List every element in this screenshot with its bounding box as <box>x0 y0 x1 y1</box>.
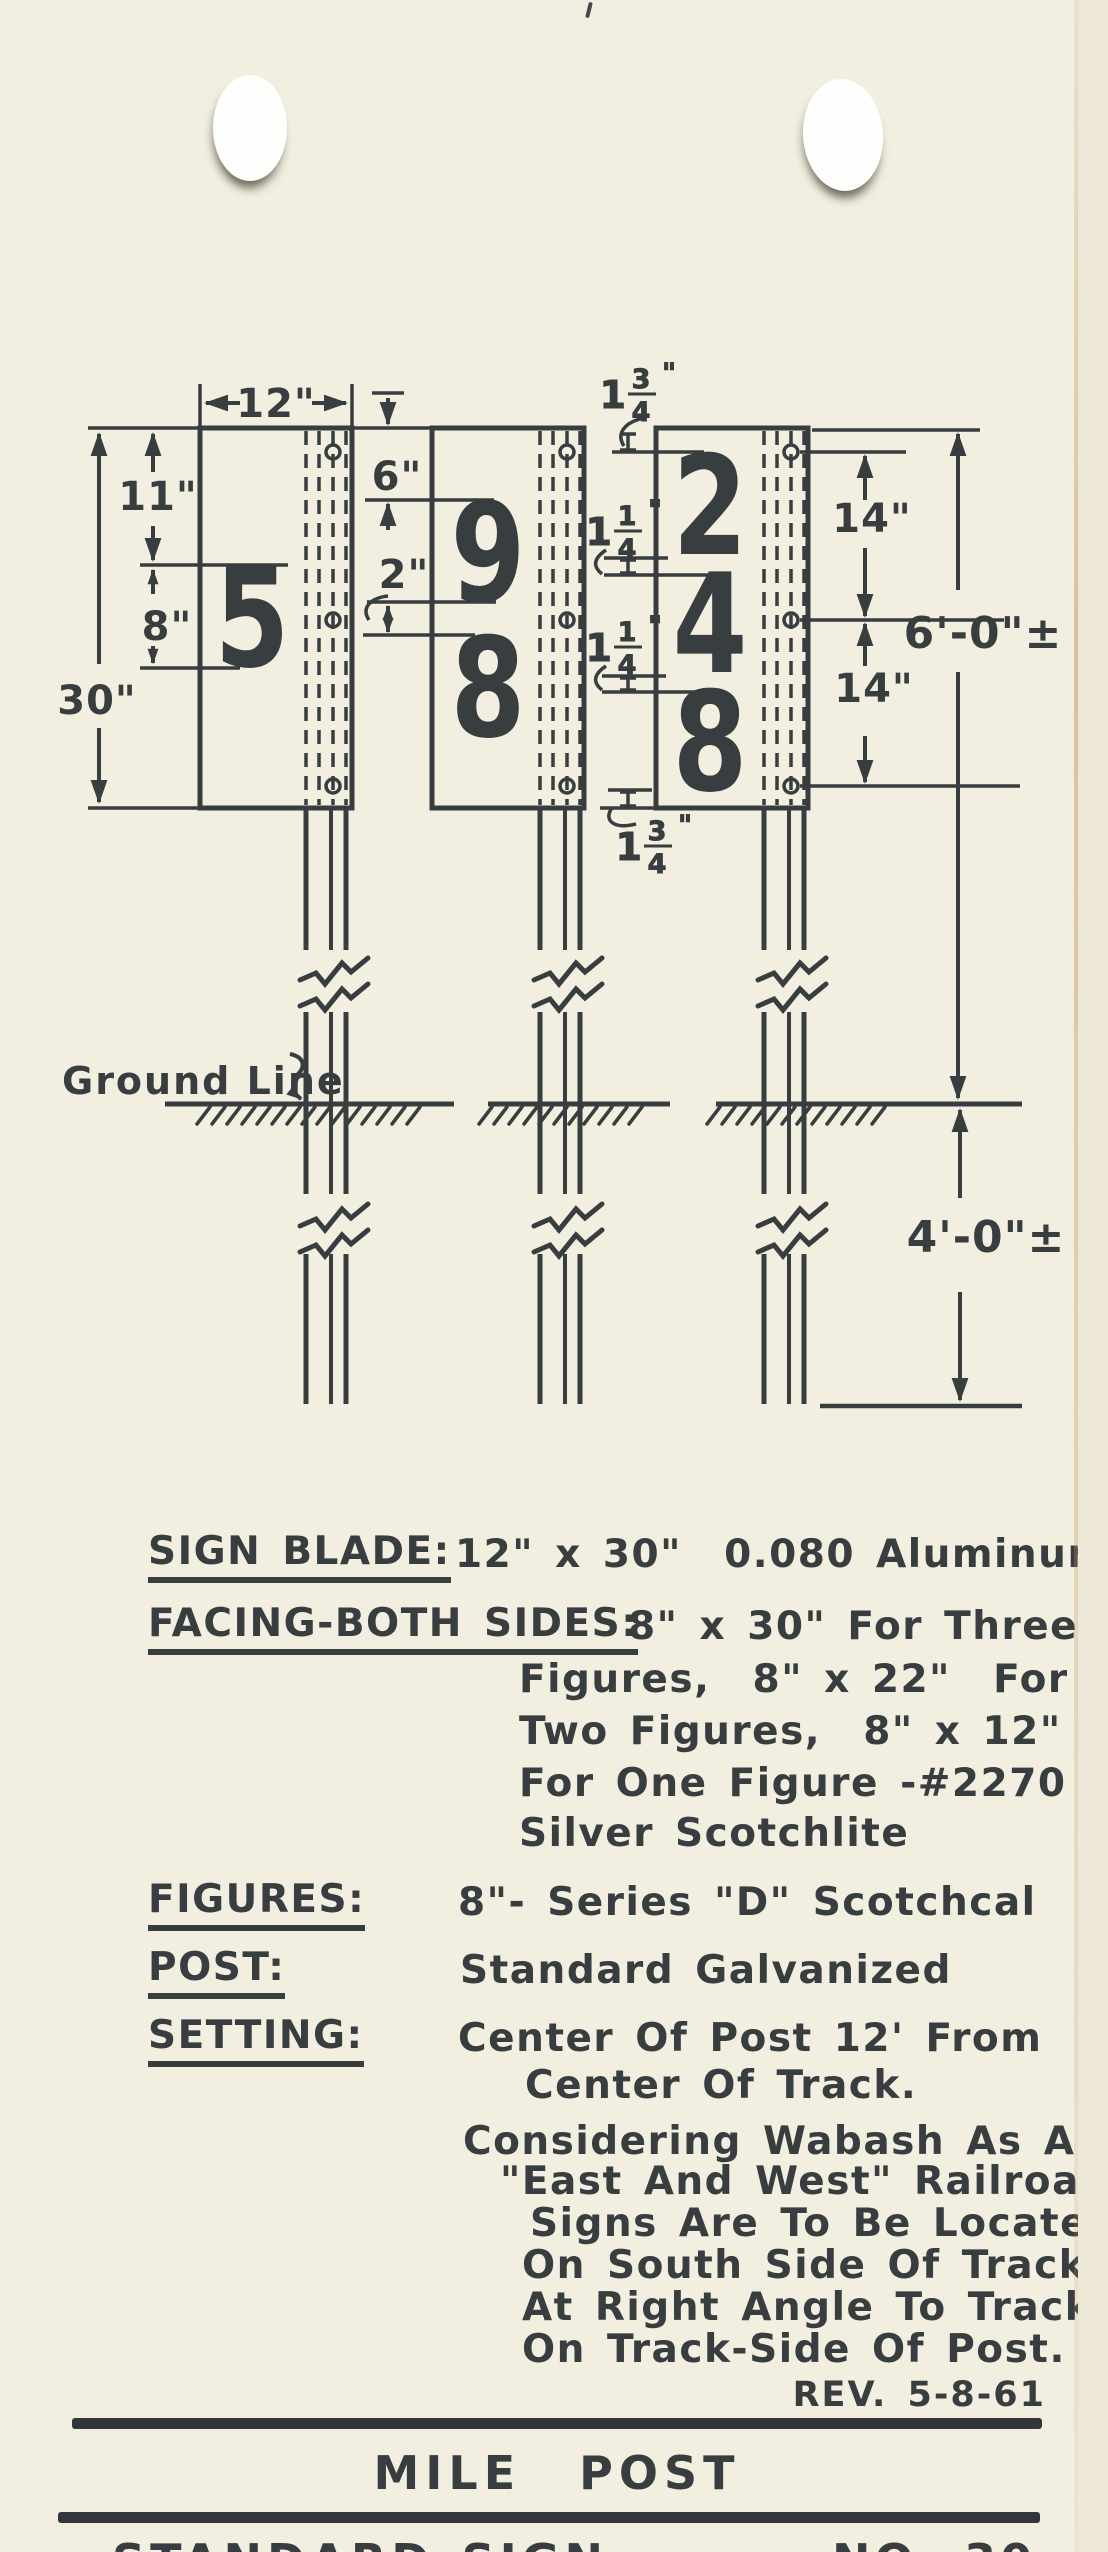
spec-facing-cont3: For One Figure -#2270 <box>519 1764 1066 1803</box>
svg-text:3: 3 <box>632 364 651 395</box>
dim-figure-height: 8" <box>142 604 193 650</box>
dim-top-margin: 11" <box>118 474 198 520</box>
dim-mid-gap: 2" <box>379 552 430 598</box>
svg-text:4: 4 <box>618 650 637 681</box>
dim-blade-height: 30" <box>57 678 137 724</box>
revision-date: REV. 5-8-61 <box>793 2378 1046 2413</box>
svg-text:1: 1 <box>600 373 626 417</box>
dim-bolt-lower: 14" <box>834 666 914 712</box>
dim-gap2: 1 1 4 " <box>586 611 663 681</box>
spec-setting-cont1: Center Of Track. <box>525 2066 917 2105</box>
spec-setting-value: Center Of Post 12' From <box>458 2019 1042 2058</box>
spec-facing-value: 8" x 30" For Three <box>628 1607 1078 1646</box>
figure-8-right: 8 <box>673 663 748 824</box>
svg-text:": " <box>662 358 676 389</box>
spec-note-line3: Signs Are To Be Located <box>530 2204 1108 2243</box>
spec-post-value: Standard Galvanized <box>460 1951 952 1990</box>
spec-note-line4: On South Side Of Track <box>522 2246 1086 2285</box>
sign-figures: 5 9 8 2 4 8 <box>215 427 748 824</box>
svg-text:4: 4 <box>632 397 651 428</box>
mile-post-drawing: 5 9 8 2 4 8 12" 11" 8" 30 <box>0 0 1108 1450</box>
dim-gap1: 1 1 4 " <box>586 495 663 565</box>
spec-facing-label: FACING-BOTH SIDES: <box>148 1604 638 1655</box>
spec-facing-cont4: Silver Scotchlite <box>519 1814 909 1853</box>
standard-sign-label: STANDARD SIGN <box>112 2538 608 2552</box>
spec-sign-blade-label: SIGN BLADE: <box>148 1532 451 1583</box>
page-edge-strip <box>1078 0 1108 2552</box>
svg-text:": " <box>648 495 662 526</box>
svg-text:1: 1 <box>616 825 642 869</box>
svg-text:1: 1 <box>586 626 612 670</box>
scanned-standard-sign-sheet: 5 9 8 2 4 8 12" 11" 8" 30 <box>0 0 1108 2552</box>
svg-text:": " <box>648 611 662 642</box>
spec-note-line1: Considering Wabash As An <box>463 2122 1105 2161</box>
dim-mid-top-margin: 6" <box>372 454 423 500</box>
spec-note-line2: "East And West" Railroad, <box>500 2162 1108 2201</box>
svg-text:1: 1 <box>586 510 612 554</box>
spec-sign-blade-value: 12" x 30" 0.080 Aluminum <box>455 1535 1108 1574</box>
dim-top-gap: 1 3 4 " <box>600 358 677 428</box>
spec-figures-value: 8"- Series "D" Scotchcal <box>458 1883 1037 1922</box>
sign-number: NO. 30 <box>832 2538 1036 2552</box>
spec-setting-label: SETTING: <box>148 2016 364 2067</box>
spec-note-line6: On Track-Side Of Post. <box>522 2330 1066 2369</box>
spec-note-line5: At Right Angle To Track <box>522 2288 1092 2327</box>
sheet-title: MILE POST <box>72 2450 1042 2496</box>
spec-figures-label: FIGURES: <box>148 1880 365 1931</box>
dim-bolt-upper: 14" <box>832 496 912 542</box>
dim-blade-width: 12" <box>236 381 316 427</box>
svg-text:4: 4 <box>618 534 637 565</box>
figure-8-mid: 8 <box>451 609 526 770</box>
spec-facing-cont1: Figures, 8" x 22" For <box>519 1660 1069 1699</box>
dim-bottom-gap: 1 3 4 " <box>616 810 693 880</box>
title-block-rule-middle <box>58 2512 1040 2523</box>
svg-text:": " <box>678 810 692 841</box>
svg-text:1: 1 <box>618 501 637 532</box>
svg-text:3: 3 <box>648 816 667 847</box>
spec-post-label: POST: <box>148 1948 285 1999</box>
svg-text:4: 4 <box>648 849 667 880</box>
spec-facing-cont2: Two Figures, 8" x 12" <box>519 1712 1062 1751</box>
svg-text:1: 1 <box>618 617 637 648</box>
figure-5: 5 <box>215 539 290 700</box>
dim-depth-below-ground: 4'-0"± <box>907 1212 1066 1263</box>
title-block-rule-top <box>72 2418 1042 2429</box>
dim-height-above-ground: 6'-0"± <box>904 608 1063 659</box>
